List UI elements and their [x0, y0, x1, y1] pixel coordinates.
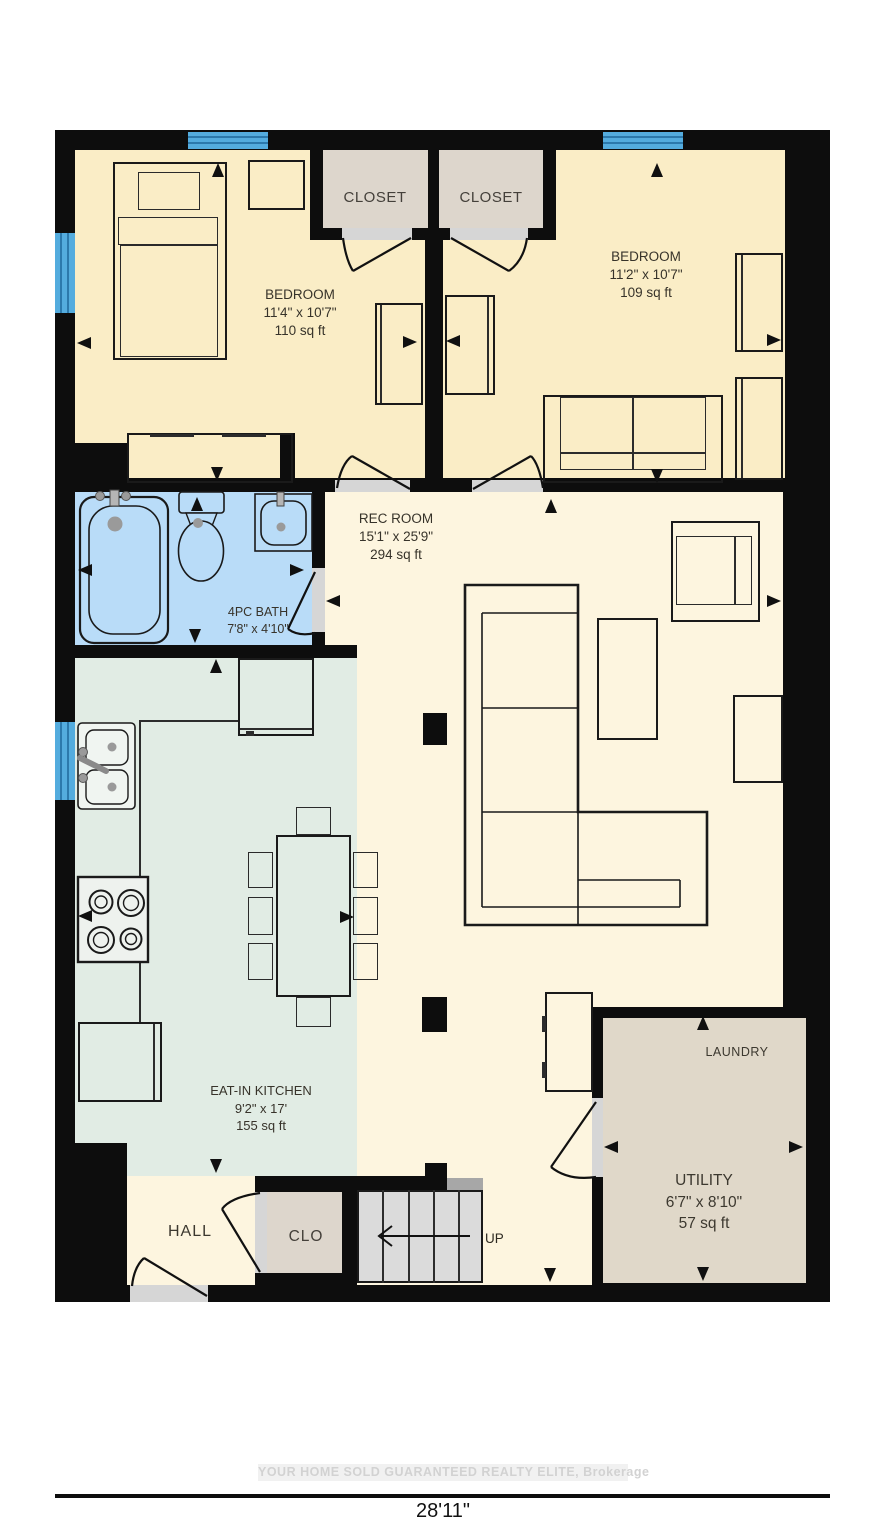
nightstand: [248, 160, 305, 210]
direction-arrow-icon: [545, 499, 557, 513]
closet-wall: [310, 150, 323, 240]
utility-label: UTILITY 6'7" x 8'10" 57 sq ft: [629, 1170, 779, 1235]
direction-arrow-icon: [697, 1267, 709, 1281]
dining-chair: [248, 943, 273, 980]
window: [188, 132, 268, 149]
base-cabinet: [78, 1022, 162, 1102]
floor-plan: CLOSET CLOSET BEDROOM 11'4" x 10'7" 110 …: [0, 0, 881, 1524]
direction-arrow-icon: [212, 163, 224, 177]
stairs-up-label: UP: [485, 1230, 515, 1248]
direction-arrow-icon: [697, 1016, 709, 1030]
door-threshold: [335, 480, 410, 492]
closet-wall: [428, 150, 439, 240]
dining-chair: [296, 807, 331, 835]
direction-arrow-icon: [767, 334, 781, 346]
direction-arrow-icon: [340, 911, 354, 923]
wardrobe: [375, 303, 423, 405]
bedroom-divider-wall: [425, 240, 443, 492]
direction-arrow-icon: [767, 595, 781, 607]
dining-chair: [248, 897, 273, 935]
direction-arrow-icon: [789, 1141, 803, 1153]
laundry-label: LAUNDRY: [677, 1044, 797, 1061]
direction-arrow-icon: [446, 335, 460, 347]
dining-chair: [296, 997, 331, 1027]
door-threshold: [342, 228, 412, 240]
direction-arrow-icon: [544, 1268, 556, 1282]
direction-arrow-icon: [191, 497, 203, 511]
door-threshold: [450, 228, 528, 240]
closet-left-label: CLOSET: [325, 188, 425, 208]
window: [603, 132, 683, 149]
direction-arrow-icon: [78, 910, 92, 922]
direction-arrow-icon: [78, 564, 92, 576]
fridge: [238, 658, 314, 736]
door-threshold: [592, 1098, 603, 1177]
bed-pillow: [138, 172, 200, 210]
direction-arrow-icon: [211, 467, 223, 481]
bath-label: 4PC BATH 7'8" x 4'10": [203, 604, 313, 638]
bedroom-left-label: BEDROOM 11'4" x 10'7" 110 sq ft: [230, 286, 370, 341]
dresser: [127, 433, 293, 483]
direction-arrow-icon: [210, 1159, 222, 1173]
direction-arrow-icon: [290, 564, 304, 576]
direction-arrow-icon: [189, 629, 201, 643]
direction-arrow-icon: [604, 1141, 618, 1153]
entry-threshold: [130, 1285, 208, 1302]
direction-arrow-icon: [403, 336, 417, 348]
bath-bottom-wall: [55, 645, 357, 658]
closet-wall: [543, 150, 556, 240]
clo-label: CLO: [266, 1227, 346, 1248]
column: [423, 713, 447, 745]
dining-chair: [353, 852, 378, 888]
dimension-line: [55, 1494, 830, 1498]
rec-room-label: REC ROOM 15'1" x 25'9" 294 sq ft: [326, 510, 466, 565]
counter-edge: [139, 962, 141, 1022]
dining-chair: [353, 943, 378, 980]
staircase: [357, 1190, 483, 1283]
bedroom-right-label: BEDROOM 11'2" x 10'7" 109 sq ft: [576, 248, 716, 303]
counter-edge: [139, 720, 238, 722]
direction-arrow-icon: [326, 595, 340, 607]
bed-blanket-band: [118, 217, 218, 245]
cabinet: [545, 992, 593, 1092]
door-threshold: [312, 568, 325, 632]
side-table: [733, 695, 783, 783]
kitchen-label: EAT-IN KITCHEN 9'2" x 17' 155 sq ft: [186, 1082, 336, 1135]
direction-arrow-icon: [651, 469, 663, 483]
hall-label: HALL: [140, 1221, 240, 1243]
dining-chair: [353, 897, 378, 935]
direction-arrow-icon: [210, 659, 222, 673]
window: [55, 722, 75, 800]
stair-landing: [447, 1178, 483, 1190]
door-threshold: [472, 480, 543, 492]
bed-blanket: [120, 245, 218, 357]
window: [55, 233, 75, 313]
dining-chair: [248, 852, 273, 888]
direction-arrow-icon: [651, 163, 663, 177]
coffee-table: [597, 618, 658, 740]
counter-edge: [139, 720, 141, 878]
brokerage-watermark: YOUR HOME SOLD GUARANTEED REALTY ELITE, …: [258, 1464, 628, 1481]
direction-arrow-icon: [77, 337, 91, 349]
overall-width-dimension: 28'11": [343, 1500, 543, 1523]
closet-right-label: CLOSET: [441, 188, 541, 208]
column: [422, 997, 447, 1032]
